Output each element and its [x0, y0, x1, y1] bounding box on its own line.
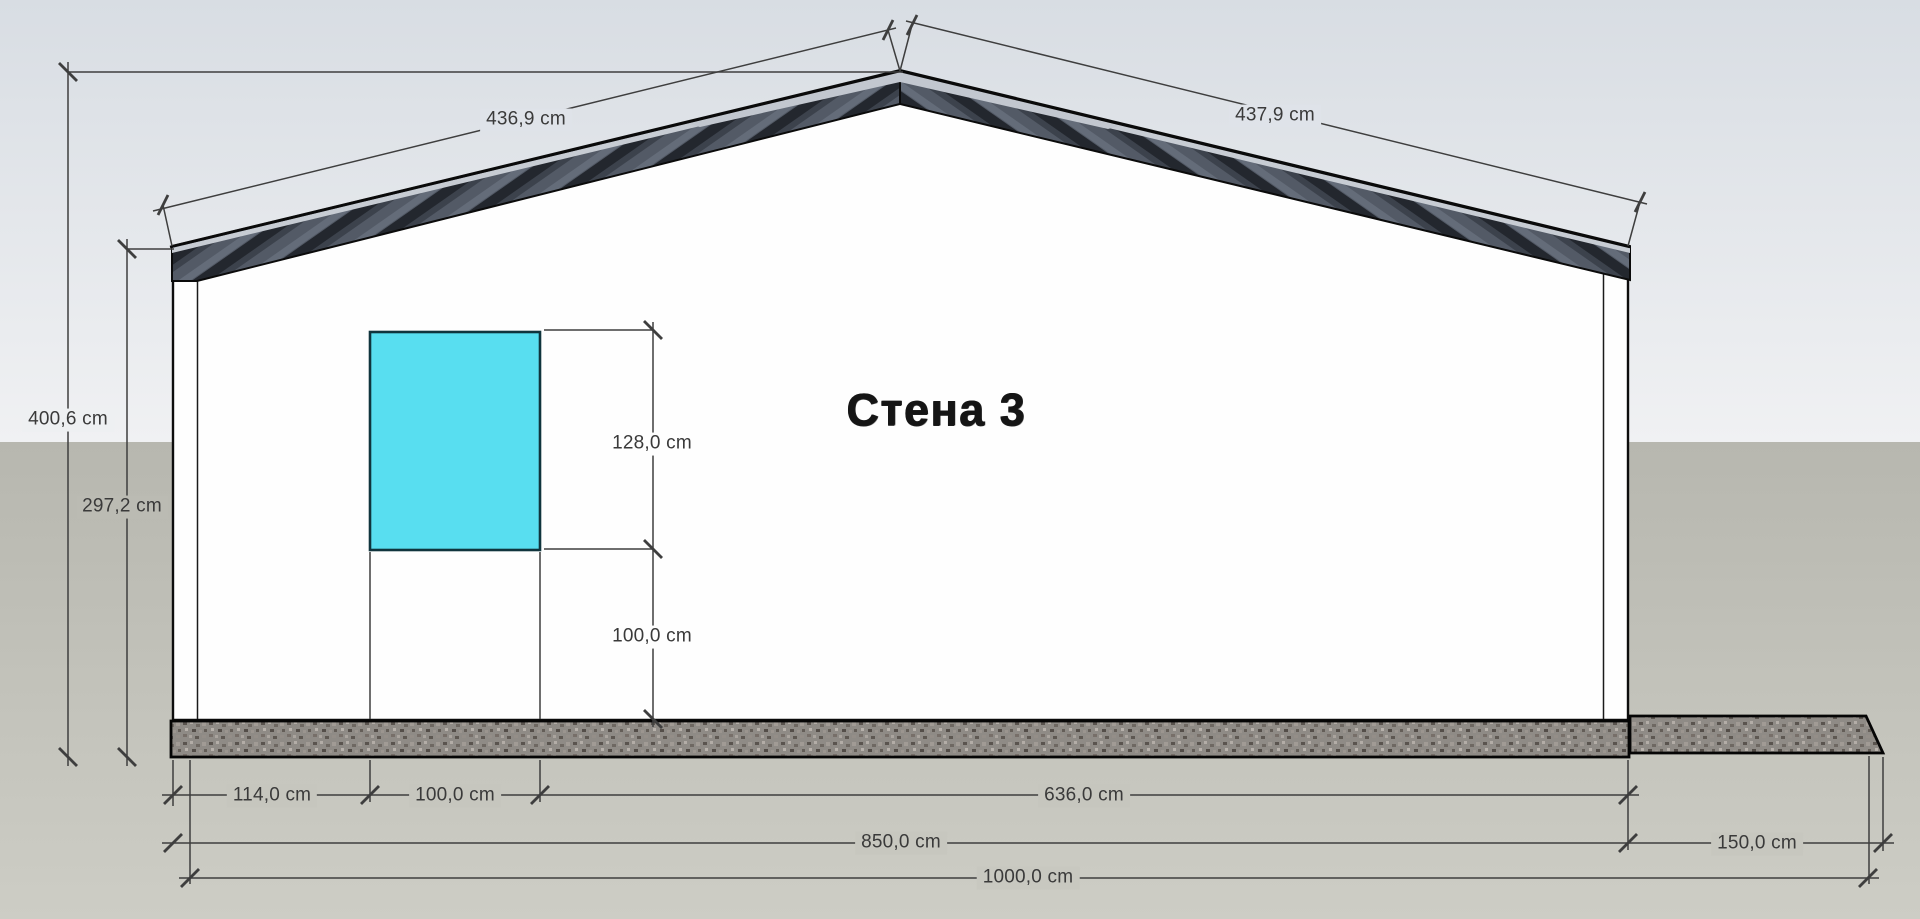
dim-label-roof-left[interactable]: 436,9 cm — [480, 109, 572, 132]
dim-label-window-offset[interactable]: 114,0 cm — [227, 785, 317, 808]
dim-label-window-height[interactable]: 128,0 cm — [606, 433, 698, 456]
dim-label-eave-height[interactable]: 297,2 cm — [76, 496, 168, 519]
porch-slab[interactable] — [1630, 716, 1883, 753]
foundation-slab[interactable] — [171, 721, 1629, 757]
dim-label-right-segment[interactable]: 636,0 cm — [1038, 785, 1130, 808]
cad-viewport[interactable]: 436,9 cm 437,9 cm 400,6 cm 297,2 cm 128,… — [0, 0, 1920, 919]
dim-label-roof-right[interactable]: 437,9 cm — [1229, 105, 1321, 128]
dim-label-total-length[interactable]: 1000,0 cm — [977, 867, 1080, 890]
drawing-canvas[interactable] — [0, 0, 1920, 919]
wall-title[interactable]: Стена 3 — [846, 384, 1026, 436]
dim-label-total-height[interactable]: 400,6 cm — [22, 409, 114, 432]
dim-label-house-length[interactable]: 850,0 cm — [855, 832, 947, 855]
window[interactable] — [370, 332, 540, 550]
dim-label-window-sill[interactable]: 100,0 cm — [606, 626, 698, 649]
dim-label-porch-length[interactable]: 150,0 cm — [1711, 833, 1803, 856]
dim-label-window-width[interactable]: 100,0 cm — [409, 785, 501, 808]
